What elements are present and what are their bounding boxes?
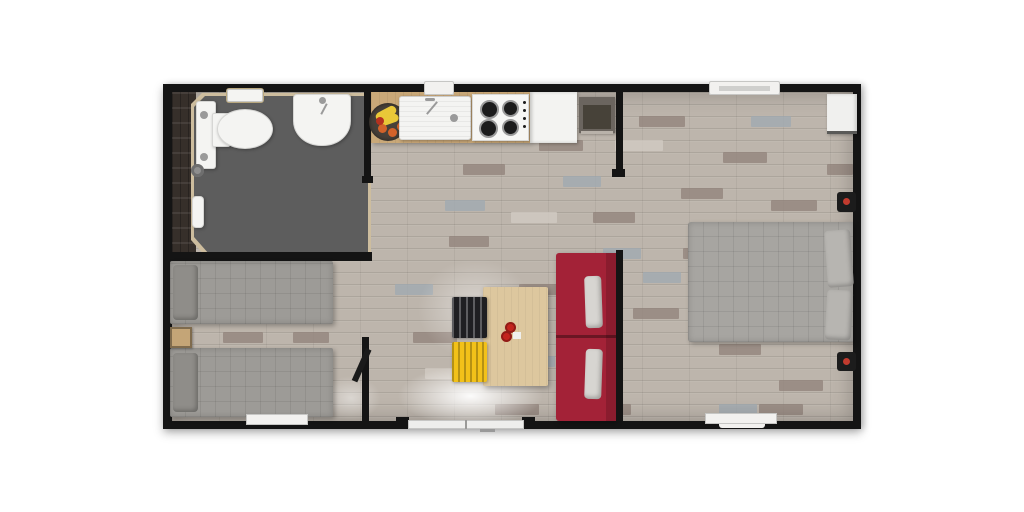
plank-accent: [723, 152, 767, 163]
dark-appliance-front: [583, 105, 611, 129]
twin-bedroom-window: [246, 414, 308, 425]
floor-plan: [163, 84, 861, 429]
napkin: [513, 332, 521, 339]
sofa-cushion: [584, 349, 603, 400]
sink-faucet-handle: [425, 98, 435, 101]
double-bed-pillow: [824, 229, 854, 288]
towel-radiator: [192, 196, 204, 228]
refrigerator: [530, 92, 577, 143]
hob-burner: [502, 119, 519, 136]
kitchen-partition-wall: [616, 92, 623, 175]
plank-accent: [449, 236, 489, 247]
bathroom-bottom-wall: [166, 252, 372, 261]
bathroom-right-wall: [364, 92, 371, 178]
wall-heater-dot: [843, 198, 850, 205]
orange-fruit: [378, 124, 387, 133]
wall-heater-dot: [843, 358, 850, 365]
window-sill-tab: [719, 424, 765, 428]
twin-bed-1-pillow: [173, 265, 198, 320]
plank-accent: [395, 284, 433, 295]
living-partition-wall: [616, 250, 623, 421]
toilet-tank-knob: [200, 111, 208, 119]
hob-knob: [523, 125, 526, 128]
twin-bed-2-pillow: [173, 353, 198, 412]
plank-accent: [751, 116, 791, 127]
kitchen-partition-jamb: [612, 169, 625, 177]
floor-drain: [191, 164, 204, 177]
plank-accent: [413, 332, 457, 343]
plank-accent: [445, 200, 485, 211]
window-glass: [719, 86, 770, 91]
plank-accent: [681, 188, 723, 199]
red-cup: [501, 331, 512, 342]
hob-knob: [523, 117, 526, 120]
dark-appliance-base: [581, 131, 613, 134]
plank-accent: [511, 212, 557, 223]
sink-drain: [450, 114, 458, 122]
plank-accent: [633, 308, 679, 319]
plank-accent: [639, 116, 685, 127]
plank-accent: [563, 176, 601, 187]
hob-knob: [523, 101, 526, 104]
plank-accent: [643, 272, 681, 283]
plank-accent: [223, 332, 263, 343]
double-bedroom-bottom-window: [705, 413, 777, 424]
plank-accent: [779, 380, 823, 391]
plank-accent: [771, 200, 817, 211]
orange-fruit: [388, 128, 397, 137]
toilet-bowl: [217, 109, 273, 149]
yellow-chair: [452, 342, 487, 382]
sofa-cushion: [584, 276, 603, 329]
bathroom-door-jamb: [362, 176, 373, 183]
plank-accent: [827, 164, 853, 175]
apple-fruit: [376, 117, 384, 125]
kitchen-top-window: [424, 81, 454, 95]
black-chair: [452, 297, 487, 338]
hob-burner: [480, 100, 499, 119]
door-mullion: [465, 420, 467, 429]
door-handle: [480, 429, 495, 432]
hob-burner: [479, 119, 498, 138]
hob-burner: [502, 100, 519, 117]
sofa-seat-divider: [556, 335, 616, 338]
plank-accent: [293, 332, 329, 343]
plank-accent: [495, 404, 539, 415]
hob-knob: [523, 109, 526, 112]
bathroom-shelf-window: [226, 88, 264, 103]
wardrobe-base: [827, 131, 857, 134]
plank-accent: [719, 344, 761, 355]
double-bed-pillow: [825, 289, 854, 340]
plank-accent: [593, 212, 635, 223]
nightstand: [170, 327, 192, 348]
toilet-tank-knob: [200, 153, 208, 161]
wardrobe: [827, 94, 857, 134]
plank-accent: [463, 164, 505, 175]
page-canvas: { "scene": { "type": "floor-plan-3d-top-…: [0, 0, 1024, 512]
